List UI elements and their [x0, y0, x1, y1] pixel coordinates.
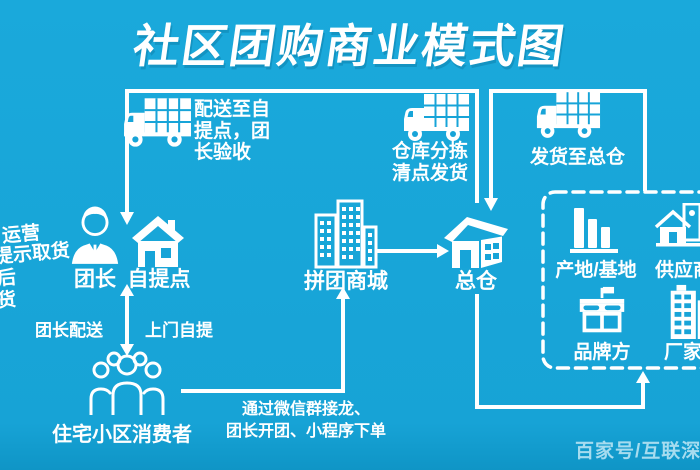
- buildings-icon: [314, 199, 378, 269]
- node-label-pickup-point: 自提点: [126, 263, 192, 293]
- house-pin-icon: [654, 203, 700, 253]
- side-note-line: 货: [0, 284, 17, 313]
- truck-icon: [535, 91, 601, 140]
- factory-building-icon: [668, 283, 700, 339]
- edge-label-self-pickup: 上门自提: [145, 316, 213, 341]
- supplier-label-supplier: 供应商: [655, 255, 700, 282]
- route-label-deliver-to-pickup: 配送至自提点，团长验收: [194, 99, 282, 164]
- supplier-label-manufacturer: 厂家: [664, 337, 700, 364]
- route-label-warehouse-sorting: 仓库分拣清点发货: [384, 141, 476, 184]
- supplier-label-origin-base: 产地/基地: [546, 255, 646, 282]
- node-label-consumers: 住宅小区消费者: [42, 418, 202, 447]
- watermark-text: 百家号/互联深: [575, 436, 700, 463]
- silo-bars-icon: [570, 206, 620, 254]
- people-group-icon: [87, 349, 167, 415]
- infographic-canvas: 社区团购商业模式图 配送至自提点，团长验收 仓库分拣清点发货 发货至总仓 团长 …: [0, 0, 700, 470]
- house-icon: [132, 215, 184, 267]
- node-label-group-mall: 拼团商城: [302, 265, 390, 295]
- warehouse-icon: [443, 214, 509, 268]
- node-label-main-warehouse: 总仓: [447, 265, 505, 295]
- edge-label-leader-delivery: 团长配送: [35, 316, 103, 341]
- arrowhead-down-to-warehouse: [484, 198, 498, 211]
- node-label-leader: 团长: [64, 263, 126, 293]
- route-label-ship-to-main-warehouse: 发货至总仓: [515, 142, 640, 169]
- person-icon: [68, 205, 122, 265]
- supplier-label-brand: 品牌方: [567, 337, 637, 364]
- truck-icon: [402, 93, 470, 143]
- storefront-flag-icon: [577, 285, 627, 337]
- consumers-to-mall-line: [181, 297, 343, 391]
- page-title: 社区团购商业模式图: [0, 10, 700, 76]
- edge-label-order-channel: 通过微信群接龙、 团长开团、小程序下单: [208, 399, 404, 443]
- arrowhead-up-to-suppliers-box: [636, 371, 650, 383]
- truck-icon: [122, 97, 192, 149]
